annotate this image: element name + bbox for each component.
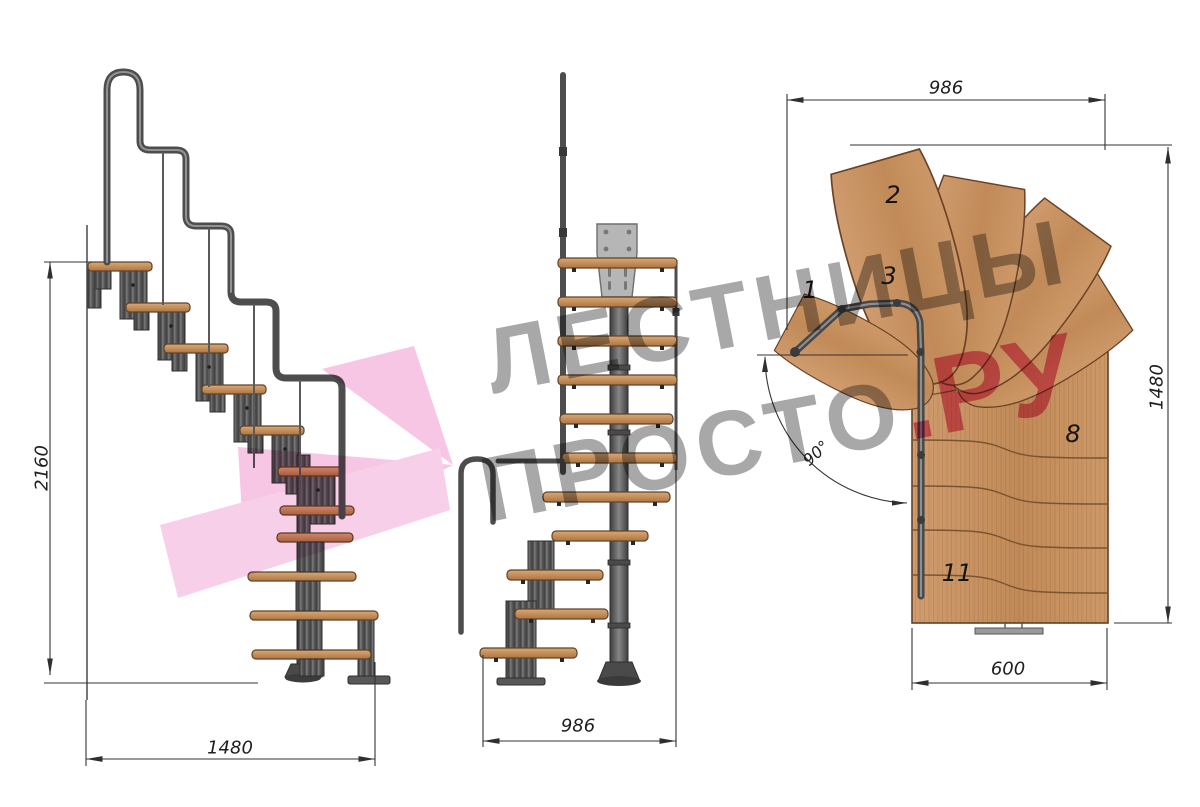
step-label-8: 8 bbox=[1065, 420, 1080, 448]
dimension-lines bbox=[0, 0, 1200, 807]
step-label-1: 1 bbox=[802, 276, 817, 304]
technical-drawing-canvas: 2160 1480 986 986 1480 600 90° 1 2 3 8 1… bbox=[0, 0, 1200, 807]
side-height-dim: 2160 bbox=[32, 445, 53, 491]
front-width-dim: 986 bbox=[561, 716, 595, 737]
step-label-2: 2 bbox=[885, 181, 900, 209]
step-label-11: 11 bbox=[942, 559, 973, 587]
step-label-3: 3 bbox=[881, 262, 896, 290]
plan-depth-dim: 1480 bbox=[1147, 364, 1168, 410]
plan-width-dim: 986 bbox=[929, 78, 963, 99]
arc-arrows bbox=[762, 356, 907, 506]
plan-exit-dim: 600 bbox=[991, 659, 1025, 680]
side-run-dim: 1480 bbox=[207, 738, 253, 759]
